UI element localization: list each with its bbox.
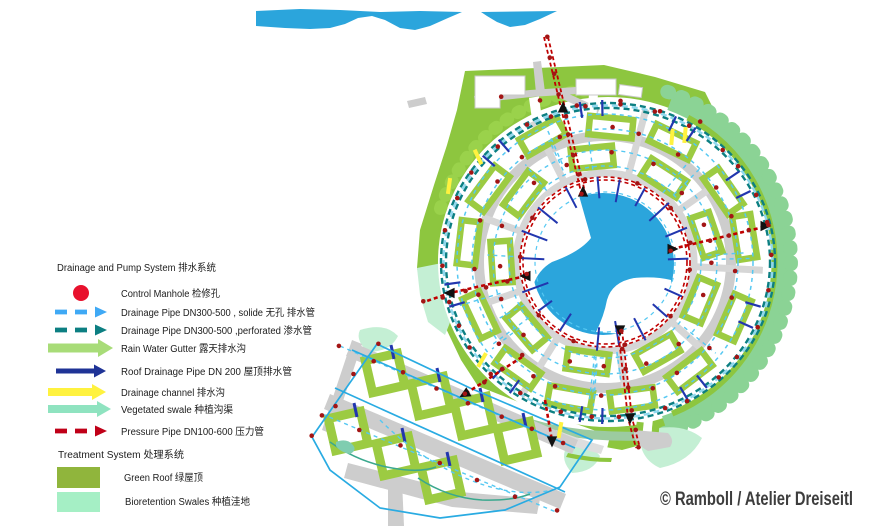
svg-text:Drainage channel 排水沟: Drainage channel 排水沟 xyxy=(121,386,225,399)
svg-text:Green Roof 绿屋顶: Green Roof 绿屋顶 xyxy=(124,471,203,484)
svg-text:Treatment System 处理系统: Treatment System 处理系统 xyxy=(58,448,184,461)
svg-text:Pressure Pipe DN100-600 压力管: Pressure Pipe DN100-600 压力管 xyxy=(121,425,264,438)
svg-text:Bioretention Swales 种植洼地: Bioretention Swales 种植洼地 xyxy=(125,495,250,508)
svg-text:Drainage Pipe DN300-500 ,perfo: Drainage Pipe DN300-500 ,perforated 渗水管 xyxy=(121,324,312,337)
svg-text:Drainage Pipe DN300-500 , soli: Drainage Pipe DN300-500 , solide 无孔 排水管 xyxy=(121,306,315,319)
svg-text:Drainage and Pump System 排水系统: Drainage and Pump System 排水系统 xyxy=(57,261,216,274)
svg-text:Rain Water Gutter 露天排水沟: Rain Water Gutter 露天排水沟 xyxy=(121,342,246,355)
svg-text:© Ramboll / Atelier Dreiseitl: © Ramboll / Atelier Dreiseitl xyxy=(660,489,853,510)
svg-text:Vegetated swale 种植沟渠: Vegetated swale 种植沟渠 xyxy=(121,403,233,416)
svg-text:Roof Drainage Pipe DN 200 屋顶排水: Roof Drainage Pipe DN 200 屋顶排水管 xyxy=(121,365,292,378)
svg-text:Control Manhole 检修孔: Control Manhole 检修孔 xyxy=(121,287,220,300)
